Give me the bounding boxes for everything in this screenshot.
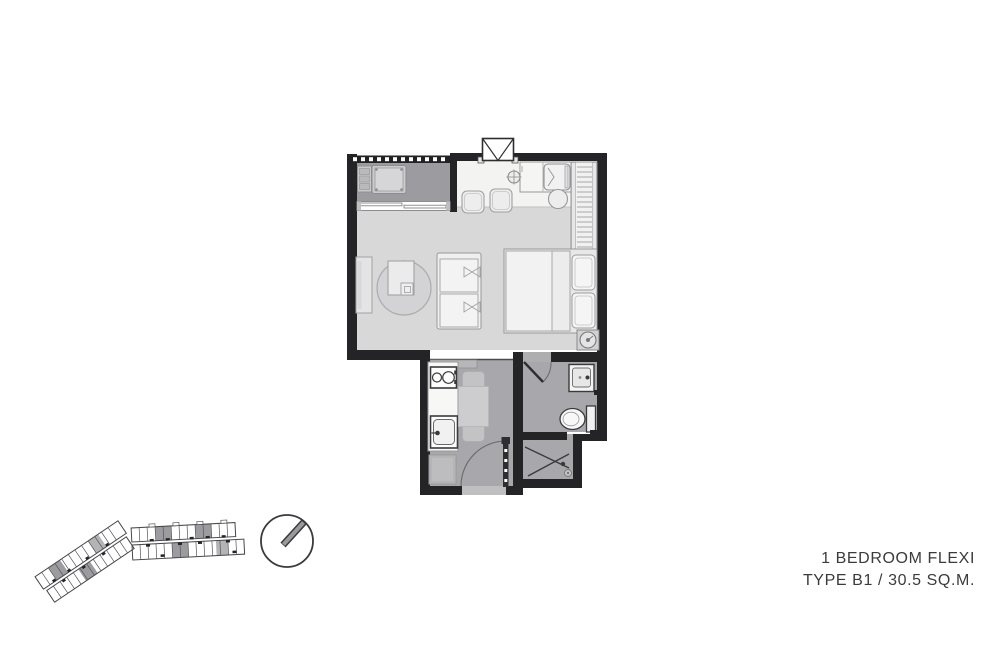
dining-table [459, 372, 489, 442]
shaft [478, 139, 518, 164]
wardrobe [571, 162, 597, 254]
fridge [544, 164, 570, 190]
tv-console [356, 257, 372, 313]
unit-caption: 1 BEDROOM FLEXI TYPE B1 / 30.5 SQ.M. [803, 548, 975, 592]
unit-type-area: TYPE B1 / 30.5 SQ.M. [803, 570, 975, 592]
balcony-railing [350, 156, 451, 164]
kitchen-sink [431, 416, 458, 448]
floor-plan-page: 1 BEDROOM FLEXI TYPE B1 / 30.5 SQ.M. [0, 0, 1000, 667]
fan [577, 330, 599, 350]
unit-name: 1 BEDROOM FLEXI [803, 548, 975, 570]
hob [431, 367, 457, 388]
ac-unit [358, 166, 407, 194]
coffee-table [388, 261, 414, 295]
key-plan [35, 519, 245, 603]
washing-machine [429, 455, 456, 484]
sliding-door [357, 202, 450, 211]
double-bed [504, 249, 597, 333]
floor-drain [565, 470, 572, 477]
north-arrow-icon [261, 515, 313, 567]
sofa [437, 253, 481, 329]
round-table [549, 190, 568, 209]
vanity-basin [569, 365, 594, 392]
